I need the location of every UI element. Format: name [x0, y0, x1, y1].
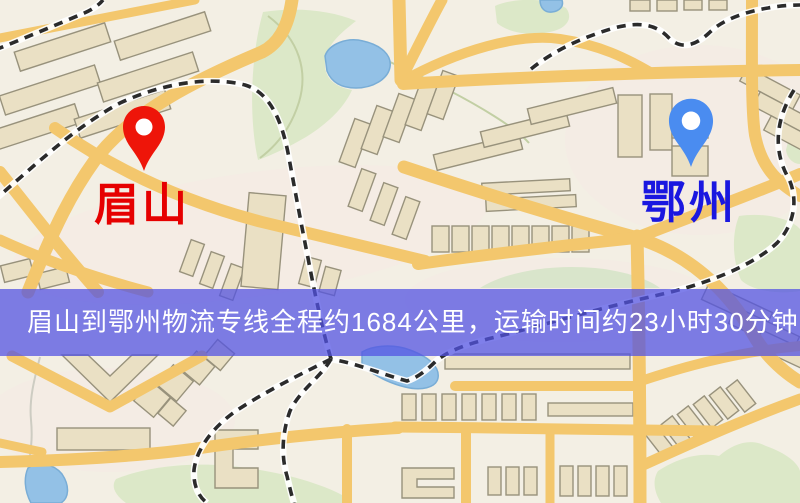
route-banner-text: 眉山到鄂州物流专线全程约1684公里，运输时间约23小时30分钟. — [27, 307, 800, 337]
destination-label: 鄂州 — [641, 177, 737, 228]
origin-pin-hole — [136, 119, 153, 136]
map-canvas: 眉山 鄂州 眉山到鄂州物流专线全程约1684公里，运输时间约23小时30分钟. — [0, 0, 800, 503]
destination-pin-hole — [682, 112, 700, 130]
map-screenshot: 眉山 鄂州 眉山到鄂州物流专线全程约1684公里，运输时间约23小时30分钟. — [0, 0, 800, 503]
origin-label: 眉山 — [94, 179, 190, 230]
